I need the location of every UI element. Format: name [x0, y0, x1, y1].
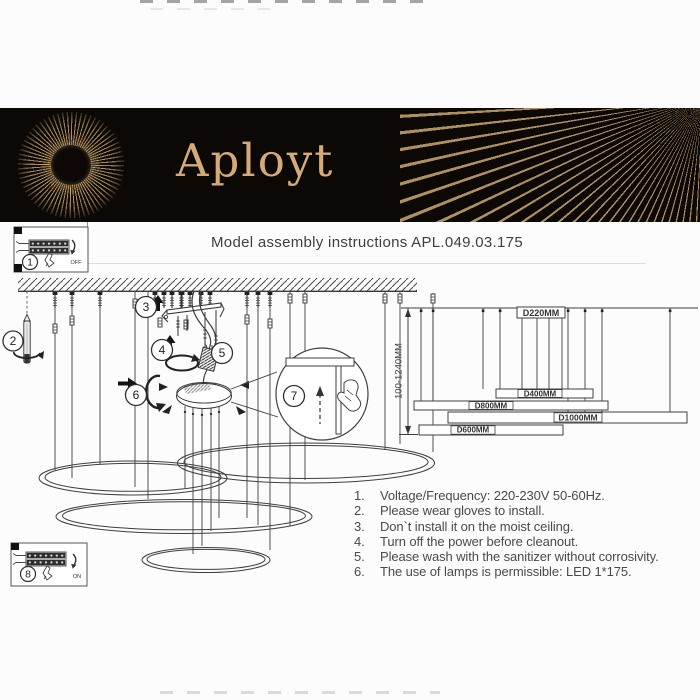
canopy-arrow-left	[159, 383, 168, 391]
dim-label-d400: D400MM	[524, 389, 557, 398]
callout-4-number: 4	[159, 343, 166, 357]
on-label: ON	[73, 574, 81, 580]
instruction-item: 5. Please wash with the sanitizer withou…	[340, 549, 698, 564]
instruction-number: 2.	[340, 503, 380, 518]
instruction-text: Please wear gloves to install.	[380, 503, 698, 518]
rotate-arrow-6	[146, 376, 162, 408]
instruction-item: 2. Please wear gloves to install.	[340, 503, 698, 518]
ring-medium-left	[39, 461, 227, 495]
instruction-sheet: Aployt Model assembly instructions APL.0…	[0, 0, 700, 700]
off-label: OFF	[71, 260, 83, 266]
canopy	[159, 381, 249, 416]
dim-label-d1000: D1000MM	[558, 413, 597, 423]
dimension-diagram: 100-1240MM D220MM D400MM	[394, 307, 699, 435]
instruction-text: Turn off the power before cleanout.	[380, 534, 698, 549]
instruction-text: Voltage/Frequency: 220-230V 50-60Hz.	[380, 488, 698, 503]
canopy-arrow-lower-right	[236, 406, 246, 415]
callout-2-number: 2	[10, 334, 17, 348]
callout-7-number: 7	[291, 389, 298, 403]
instruction-number: 5.	[340, 549, 380, 564]
instruction-text: The use of lamps is permissible: LED 1*1…	[380, 564, 698, 579]
instruction-list: 1. Voltage/Frequency: 220-230V 50-60Hz. …	[340, 488, 698, 580]
ring-small-bottom	[142, 548, 270, 573]
instruction-number: 4.	[340, 534, 380, 549]
callout-6-number: 6	[133, 388, 140, 402]
inset-step-1: OFF 1	[14, 227, 88, 272]
callout-3-number: 3	[143, 300, 150, 314]
callout-5-number: 5	[219, 346, 226, 360]
instruction-item: 3. Don`t install it on the moist ceiling…	[340, 519, 698, 534]
callout-1-number: 1	[27, 257, 33, 269]
instruction-item: 6. The use of lamps is permissible: LED …	[340, 564, 698, 579]
instruction-item: 4. Turn off the power before cleanout.	[340, 534, 698, 549]
instruction-item: 1. Voltage/Frequency: 220-230V 50-60Hz.	[340, 488, 698, 503]
height-range-label: 100-1240MM	[394, 343, 405, 399]
instruction-text: Don`t install it on the moist ceiling.	[380, 519, 698, 534]
callout-2-pin	[14, 291, 44, 363]
dim-label-d220: D220MM	[523, 308, 560, 318]
callout-markers: 2 3 4 5 6 7	[3, 295, 305, 412]
assembly-diagram: 2 3 4 5 6 7 OFF 1 O	[0, 0, 700, 700]
ceiling	[18, 278, 417, 291]
ring-largest-center	[56, 500, 312, 534]
dim-label-d600: D600MM	[457, 426, 490, 435]
instruction-number: 6.	[340, 564, 380, 579]
ring-large-right	[178, 443, 435, 483]
instruction-text: Please wash with the sanitizer without c…	[380, 549, 698, 564]
inset-step-8: ON 8	[11, 543, 87, 586]
instruction-number: 3.	[340, 519, 380, 534]
dim-label-d800: D800MM	[475, 401, 508, 410]
callout-8-number: 8	[25, 569, 31, 581]
instruction-number: 1.	[340, 488, 380, 503]
ceiling-screws	[53, 292, 435, 333]
